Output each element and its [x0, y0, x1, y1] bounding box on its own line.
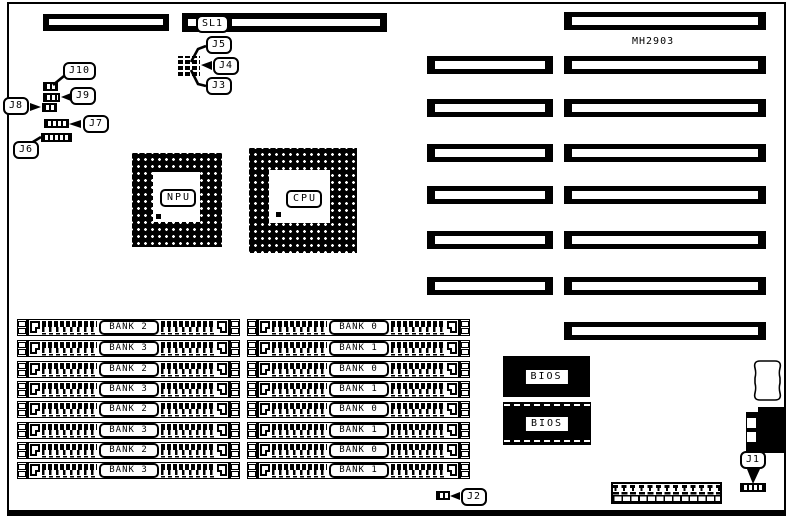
- simm-contacts: [272, 342, 327, 356]
- isa-slot-long: [564, 144, 766, 162]
- simm-contacts: [161, 424, 216, 438]
- npu-label: NPU: [160, 189, 196, 207]
- simm-clip: [217, 321, 227, 333]
- simm-clip: [447, 383, 457, 395]
- simm-clip: [260, 363, 270, 375]
- simm-clip: [260, 444, 270, 456]
- isa-slot-short: [427, 56, 553, 74]
- bios-label: BIOS: [525, 370, 567, 384]
- simm-contacts: [42, 342, 97, 356]
- simm-socket: BANK 3: [17, 422, 240, 439]
- simm-clip: [30, 464, 40, 476]
- bank-label: BANK 3: [99, 341, 159, 356]
- isa-slot-short: [427, 99, 553, 117]
- isa-slot-long: [564, 12, 766, 30]
- simm-contacts: [42, 444, 97, 458]
- cpu-label: CPU: [286, 190, 322, 208]
- connector-hole: [747, 432, 756, 442]
- simm-socket: BANK 3: [17, 340, 240, 357]
- isa-slot-long: [564, 277, 766, 295]
- j2-label: J2: [461, 488, 487, 506]
- simm-clip: [447, 363, 457, 375]
- simm-contacts: [161, 342, 216, 356]
- simm-contacts: [272, 464, 327, 478]
- simm-clip: [260, 383, 270, 395]
- j1-label: J1: [740, 451, 766, 469]
- simm-clip: [447, 444, 457, 456]
- j3-label: J3: [206, 77, 232, 95]
- simm-contacts: [272, 363, 327, 377]
- connector-stripe: [49, 19, 163, 25]
- simm-socket: BANK 0: [247, 401, 470, 418]
- simm-contacts: [42, 383, 97, 397]
- simm-clip: [30, 383, 40, 395]
- isa-slot-short: [427, 144, 553, 162]
- simm-socket: BANK 2: [17, 361, 240, 378]
- j7-label: J7: [83, 115, 109, 133]
- simm-contacts: [391, 403, 446, 417]
- simm-clip: [217, 424, 227, 436]
- simm-contacts: [161, 363, 216, 377]
- bank-label: BANK 3: [99, 423, 159, 438]
- simm-clip: [260, 321, 270, 333]
- bank-label: BANK 1: [329, 341, 389, 356]
- bank-label: BANK 2: [99, 362, 159, 377]
- simm-clip: [260, 424, 270, 436]
- j10-jumper: [43, 82, 58, 91]
- simm-contacts: [42, 321, 97, 335]
- simm-socket: BANK 2: [17, 319, 240, 336]
- simm-contacts: [391, 464, 446, 478]
- simm-contacts: [391, 383, 446, 397]
- simm-contacts: [272, 444, 327, 458]
- simm-contacts: [161, 403, 216, 417]
- isa-slot-long: [564, 56, 766, 74]
- simm-contacts: [391, 363, 446, 377]
- pin1-marker: [276, 212, 281, 217]
- simm-contacts: [161, 321, 216, 335]
- power-connector: [611, 482, 722, 504]
- simm-clip: [260, 342, 270, 354]
- j9-label: J9: [70, 87, 96, 105]
- bios-chip-bottom: BIOS: [503, 402, 591, 445]
- j5-label: J5: [206, 36, 232, 54]
- simm-socket: BANK 2: [17, 401, 240, 418]
- keyboard-plug-outline: [752, 359, 783, 403]
- connector-hole: [747, 418, 756, 428]
- isa-slot-short: [427, 277, 553, 295]
- simm-socket: BANK 0: [247, 442, 470, 459]
- bank-label: BANK 2: [99, 402, 159, 417]
- bank-label: BANK 3: [99, 382, 159, 397]
- bank-label: BANK 0: [329, 443, 389, 458]
- simm-clip: [447, 464, 457, 476]
- bank-label: BANK 2: [99, 443, 159, 458]
- simm-clip: [217, 342, 227, 354]
- simm-clip: [447, 342, 457, 354]
- simm-contacts: [391, 342, 446, 356]
- simm-contacts: [272, 403, 327, 417]
- bios-chip-top: BIOS: [503, 356, 590, 397]
- model-number: MH2903: [632, 36, 674, 47]
- top-edge-connector: [43, 14, 169, 31]
- simm-clip: [217, 363, 227, 375]
- j8-label: J8: [3, 97, 29, 115]
- simm-contacts: [42, 403, 97, 417]
- simm-contacts: [42, 363, 97, 377]
- isa-slot-short: [427, 231, 553, 249]
- simm-contacts: [272, 383, 327, 397]
- pin1-marker: [156, 214, 161, 219]
- simm-clip: [260, 403, 270, 415]
- simm-clip: [260, 464, 270, 476]
- simm-socket: BANK 3: [17, 381, 240, 398]
- simm-clip: [30, 444, 40, 456]
- bios-label: BIOS: [526, 417, 568, 431]
- connector-notch: [746, 407, 758, 412]
- bank-label: BANK 1: [329, 463, 389, 478]
- j7-jumper: [44, 119, 69, 128]
- connector-pin: [188, 19, 196, 26]
- bank-label: BANK 0: [329, 362, 389, 377]
- j8-jumper: [42, 103, 57, 112]
- simm-clip: [447, 321, 457, 333]
- simm-clip: [30, 342, 40, 354]
- isa-slot-long: [564, 322, 766, 340]
- simm-socket: BANK 3: [17, 462, 240, 479]
- simm-socket: BANK 0: [247, 361, 470, 378]
- simm-socket: BANK 1: [247, 340, 470, 357]
- simm-clip: [217, 403, 227, 415]
- sl1-label: SL1: [196, 15, 229, 33]
- simm-contacts: [272, 321, 327, 335]
- simm-clip: [30, 321, 40, 333]
- bank-label: BANK 0: [329, 320, 389, 335]
- isa-slot-long: [564, 231, 766, 249]
- simm-clip: [217, 383, 227, 395]
- bank-label: BANK 1: [329, 423, 389, 438]
- simm-socket: BANK 1: [247, 381, 470, 398]
- bank-label: BANK 0: [329, 402, 389, 417]
- bank-label: BANK 1: [329, 382, 389, 397]
- simm-socket: BANK 1: [247, 462, 470, 479]
- keyboard-din-connector: [746, 407, 784, 453]
- simm-contacts: [42, 464, 97, 478]
- j10-label: J10: [63, 62, 96, 80]
- simm-socket: BANK 2: [17, 442, 240, 459]
- simm-contacts: [391, 424, 446, 438]
- simm-contacts: [161, 383, 216, 397]
- simm-clip: [30, 424, 40, 436]
- simm-clip: [30, 403, 40, 415]
- bank-label: BANK 2: [99, 320, 159, 335]
- simm-clip: [30, 363, 40, 375]
- simm-clip: [447, 403, 457, 415]
- simm-socket: BANK 0: [247, 319, 470, 336]
- bank-label: BANK 3: [99, 463, 159, 478]
- simm-contacts: [161, 464, 216, 478]
- j9-jumper: [43, 93, 60, 102]
- j4-label: J4: [213, 57, 239, 75]
- simm-clip: [217, 444, 227, 456]
- simm-clip: [447, 424, 457, 436]
- simm-clip: [217, 464, 227, 476]
- simm-contacts: [391, 444, 446, 458]
- simm-contacts: [391, 321, 446, 335]
- simm-contacts: [42, 424, 97, 438]
- simm-socket: BANK 1: [247, 422, 470, 439]
- connector-stripe: [232, 19, 380, 26]
- motherboard-diagram: SL1 J5 J4 J3 J10 J9 J8 J7 J6 NPU CPU MH2…: [0, 0, 787, 520]
- isa-slot-long: [564, 99, 766, 117]
- isa-slot-long: [564, 186, 766, 204]
- isa-slot-short: [427, 186, 553, 204]
- j6-label: J6: [13, 141, 39, 159]
- j1-jumper: [740, 483, 766, 492]
- j3-j4-j5-header: [178, 56, 200, 76]
- simm-contacts: [272, 424, 327, 438]
- j2-jumper: [436, 491, 450, 500]
- simm-contacts: [161, 444, 216, 458]
- j6-jumper: [41, 133, 72, 142]
